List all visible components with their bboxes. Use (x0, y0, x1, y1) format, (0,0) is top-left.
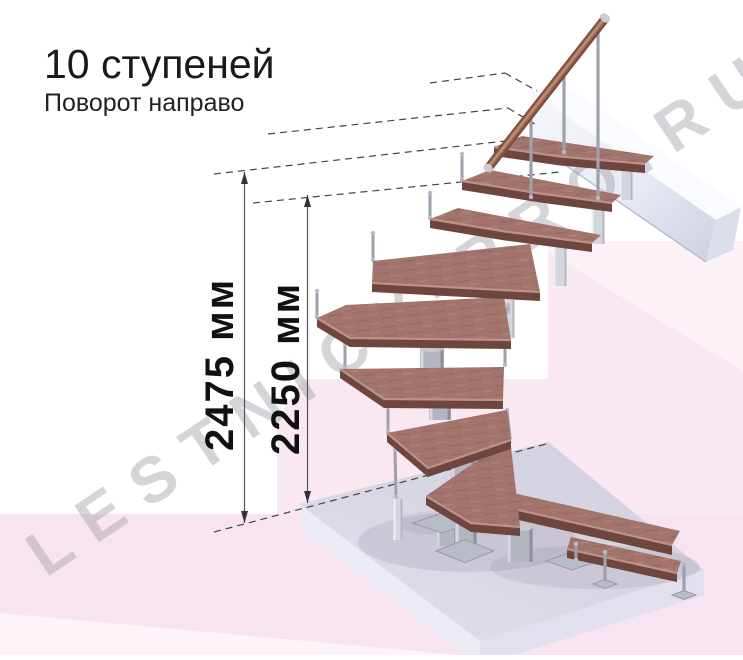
svg-text:2250 мм: 2250 мм (264, 282, 308, 455)
svg-text:Поворот направо: Поворот направо (44, 89, 244, 117)
svg-text:10 ступеней: 10 ступеней (44, 41, 275, 87)
svg-text:2475 мм: 2475 мм (198, 278, 242, 451)
